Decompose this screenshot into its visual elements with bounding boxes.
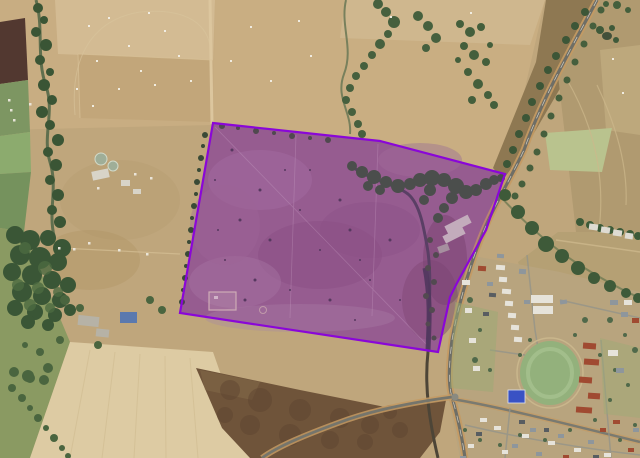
trees-creek-west [36, 106, 48, 118]
scrub-blotches [357, 434, 373, 450]
trees-sw-corner [9, 367, 19, 377]
town-houses-white [608, 350, 618, 356]
trees-riparian-light [19, 242, 31, 254]
scrub-blotches [361, 416, 379, 434]
trees-ne-scatter [603, 1, 609, 7]
trees-highway-east [581, 41, 588, 48]
trees-farm-west [60, 295, 70, 305]
town-houses-gray [530, 428, 536, 432]
town-houses-white [533, 306, 553, 314]
trees-parcel-west-fence [194, 192, 198, 196]
trees-creek-west [47, 205, 57, 215]
hay-bales [250, 26, 252, 28]
farm-vehicles [150, 177, 153, 180]
farm-vehicles [146, 253, 149, 256]
town-houses-white [574, 448, 581, 452]
trees-ne-scatter [487, 42, 493, 48]
trees-highway-east [548, 113, 555, 120]
town-houses-gray [616, 368, 624, 373]
trees-riparian-light [38, 261, 52, 275]
trees-ne-scatter [477, 23, 485, 31]
town-houses-dark [483, 312, 489, 316]
town-houses-gray [487, 282, 493, 286]
hay-bales [148, 12, 150, 14]
trees-creek-west [38, 79, 50, 91]
trees-creek-east [571, 261, 585, 275]
trees-farm-west [146, 296, 154, 304]
trees-highway-east [512, 193, 519, 200]
hay-bales [270, 80, 272, 82]
farm-vehicles [118, 249, 121, 252]
trees-parcel-west-fence [198, 155, 204, 161]
town-houses-white [502, 450, 508, 454]
trees-highway-east [590, 23, 597, 30]
farm-blue-shed [120, 312, 137, 323]
trees-creek-west [45, 175, 55, 185]
trees-creek-top [375, 39, 385, 49]
trees-creek-top [346, 84, 354, 92]
farm-south-sheds [96, 328, 110, 337]
field-ne-sandy [600, 45, 640, 135]
trees-riparian-light [45, 303, 55, 313]
trees-ne-scatter [473, 79, 483, 89]
farm-vehicles [134, 173, 137, 176]
field-green-2 [0, 132, 31, 174]
town-houses-red [579, 377, 592, 384]
trees-dam-ne [596, 26, 604, 34]
trees-town [573, 333, 577, 337]
trees-riparian-mass [64, 304, 76, 316]
trees-sw-corner [22, 370, 34, 382]
trees-creek-east [499, 189, 511, 201]
town-houses-gray [633, 428, 639, 432]
farm-vehicles [88, 242, 91, 245]
trees-highway-west [544, 66, 552, 74]
trees-riparian-light [53, 287, 63, 297]
trees-parcel-west-fence [190, 216, 194, 220]
trees-riparian-mass [21, 315, 35, 329]
town-houses-red [576, 406, 592, 413]
town-houses-white [499, 277, 507, 283]
trees-creek-east [621, 288, 631, 298]
town-houses-gray [621, 312, 628, 317]
trees-row-ne [576, 218, 584, 226]
town-houses-white [494, 426, 501, 430]
hay-bales [108, 17, 110, 19]
town-houses-white [604, 453, 611, 457]
trees-creek-east [555, 249, 569, 263]
town-houses-gray [588, 440, 594, 444]
hay-bales [96, 60, 98, 62]
town-houses-dark [489, 293, 496, 297]
town-houses-white [505, 301, 513, 307]
town-houses-white [465, 308, 472, 313]
trees-town [467, 297, 473, 303]
trees-riparian-light [12, 279, 24, 291]
town-houses-white [548, 441, 555, 445]
ne-white-sheds [625, 232, 634, 239]
town-houses-white [473, 366, 480, 371]
scrub-blotches [392, 422, 408, 438]
trees-town [632, 347, 638, 353]
trees-town [472, 357, 478, 363]
trees-town [518, 433, 522, 437]
trees-farm-west [76, 304, 84, 312]
hay-bales [190, 80, 192, 82]
trees-farm-west [158, 306, 166, 314]
field-dark-plowed [0, 18, 28, 84]
trees-ne-scatter [460, 42, 468, 50]
town-houses-red [632, 318, 639, 323]
town-houses-red [478, 266, 486, 272]
trees-town [463, 428, 467, 432]
trees-sw-corner [27, 405, 33, 411]
field-mottle-1 [60, 160, 180, 240]
trees-highway-east [541, 131, 548, 138]
town-houses-white [502, 289, 511, 295]
trees-creek-top [423, 21, 433, 31]
town-houses-gray [558, 434, 564, 438]
field-topleft-inner [78, 54, 213, 122]
trees-farm-west [36, 348, 44, 356]
farm-lane-north [210, 0, 212, 124]
hay-bales [118, 88, 120, 90]
hay-bales [230, 60, 232, 62]
town-houses-gray [536, 452, 542, 456]
hay-bales [76, 88, 78, 90]
trees-highway-east [519, 181, 526, 188]
trees-highway-east [572, 59, 579, 66]
scrub-blotches [220, 380, 240, 400]
trees-sw-corner [50, 434, 58, 442]
ne-white-sheds [601, 226, 611, 233]
trees-creek-east [538, 236, 554, 252]
trees-creek-top [413, 11, 423, 21]
trees-town [528, 338, 532, 342]
trees-riparian-mass [42, 319, 54, 331]
field-topleft-light [55, 0, 215, 60]
trees-town [607, 317, 613, 323]
hay-bales [390, 16, 392, 18]
trees-highway-west [503, 160, 511, 168]
trees-creek-west [43, 147, 53, 157]
trees-sw-corner [34, 414, 42, 422]
trees-creek-top [354, 120, 362, 128]
trees-town [478, 438, 482, 442]
field-green-1 [0, 80, 30, 136]
scrub-blotches [240, 415, 260, 435]
trees-ne-scatter [613, 1, 621, 9]
trees-town [498, 443, 502, 447]
trees-creek-west [45, 120, 55, 130]
tennis-court [508, 390, 525, 403]
trees-creek-west [40, 16, 48, 24]
town-houses-white [624, 300, 632, 305]
trees-ne-scatter [469, 50, 479, 60]
trees-farm-west [22, 342, 28, 348]
trees-parcel-west-fence [194, 179, 200, 185]
town-houses-red [588, 393, 600, 400]
trees-creek-top [352, 72, 360, 80]
town-houses-dark [544, 428, 549, 432]
farm-vehicles [10, 109, 13, 112]
trees-ne-scatter [464, 68, 472, 76]
trees-parcel-west-fence [197, 168, 201, 172]
trees-creek-west [35, 55, 45, 65]
trees-creek-top [422, 44, 430, 52]
farm-vehicles [13, 119, 16, 122]
ne-white-sheds [589, 223, 599, 230]
scrub-blotches [248, 388, 272, 412]
trees-ne-scatter [482, 58, 490, 66]
farm-west-sheds [133, 189, 141, 194]
trees-ne-scatter [455, 57, 461, 63]
trees-riparian-light [24, 299, 36, 311]
trees-town [543, 438, 547, 442]
town-houses-white [496, 265, 505, 271]
trees-creek-west [47, 95, 57, 105]
trees-farm-west [94, 341, 102, 349]
trees-creek-west [50, 159, 62, 171]
town-houses-gray [519, 269, 526, 274]
trees-highway-west [522, 114, 530, 122]
field-pale-green [545, 128, 612, 172]
town-houses-white [531, 295, 553, 303]
trees-sw-corner [59, 445, 65, 451]
map-viewport[interactable] [0, 0, 640, 458]
trees-highway-west [509, 146, 517, 154]
trees-creek-west [52, 134, 64, 146]
trees-riparian-mass [3, 263, 21, 281]
trees-sw-corner [43, 363, 53, 373]
town-houses-white [508, 313, 516, 319]
trees-dam-ne [609, 25, 615, 31]
trees-sw-corner [8, 384, 16, 392]
trees-sw-corner [39, 375, 49, 385]
town-houses-white [522, 434, 529, 438]
aerial-imagery [0, 0, 640, 458]
trees-town [633, 423, 637, 427]
trees-highway-east [598, 7, 605, 14]
trees-ne-scatter [456, 20, 464, 28]
hay-bales [128, 45, 130, 47]
town-houses-white [469, 338, 476, 343]
town-houses-white [468, 444, 474, 448]
town-houses-dark [476, 432, 482, 436]
town-houses-gray [610, 300, 618, 305]
town-houses-gray [512, 444, 518, 448]
hay-bales [622, 92, 624, 94]
town-houses-white [514, 337, 522, 343]
hay-bales [310, 55, 312, 57]
trees-creek-east [604, 280, 616, 292]
hay-bales [154, 84, 156, 86]
trees-parcel-west-fence [187, 240, 191, 244]
trees-creek-east [511, 205, 525, 219]
trees-ne-scatter [484, 91, 492, 99]
trees-town [488, 368, 492, 372]
trees-town [518, 353, 522, 357]
farm-vehicles [29, 103, 32, 106]
hay-bales [470, 12, 472, 14]
town-houses-white [480, 418, 487, 422]
trees-creek-top [342, 96, 350, 104]
scrub-blotches [217, 407, 233, 423]
trees-town [626, 383, 630, 387]
dam-ne [602, 32, 612, 40]
hay-bales [140, 70, 142, 72]
trees-highway-west [515, 130, 523, 138]
town-houses-red [613, 420, 620, 424]
hay-bales [298, 20, 300, 22]
trees-town [478, 328, 482, 332]
trees-parcel-west-fence [202, 132, 208, 138]
trees-creek-top [384, 30, 392, 38]
trees-town [618, 438, 622, 442]
trees-highway-east [534, 149, 541, 156]
scrub-blotches [321, 431, 339, 449]
trees-creek-west [31, 27, 41, 37]
farm-tanks [108, 161, 118, 171]
town-houses-dark [519, 420, 525, 424]
trees-highway-east [527, 165, 534, 172]
trees-riparian-light [32, 282, 44, 294]
town-houses-white [462, 280, 470, 285]
trees-highway-west [562, 36, 570, 44]
hay-bales [88, 25, 90, 27]
farm-vehicles [73, 248, 76, 251]
scrub-blotches [289, 399, 311, 421]
trees-town [593, 418, 597, 422]
trees-highway-west [571, 22, 579, 30]
farm-tanks [95, 153, 107, 165]
trees-ne-scatter [490, 101, 498, 109]
trees-creek-top [381, 7, 391, 17]
trees-dam-ne [613, 37, 619, 43]
hay-bales [164, 30, 166, 32]
trees-highway-east [556, 95, 563, 102]
trees-creek-west [33, 3, 43, 13]
trees-sw-corner [18, 394, 26, 402]
town-houses-gray [497, 254, 504, 258]
trees-creek-east [525, 221, 539, 235]
ne-white-sheds [613, 229, 623, 236]
trees-creek-top [360, 62, 368, 70]
trees-ne-scatter [468, 96, 476, 104]
hay-bales [92, 105, 94, 107]
trees-highway-west [552, 52, 560, 60]
trees-town [582, 317, 588, 323]
town-houses-white [511, 325, 519, 331]
trees-ne-scatter [465, 27, 475, 37]
field-topcenter-light [340, 0, 545, 45]
town-houses-red [584, 358, 599, 365]
junction-island [452, 394, 459, 401]
town-houses-red [600, 428, 606, 432]
trees-highway-west [581, 8, 589, 16]
trees-creek-west [46, 68, 54, 76]
trees-creek-west [40, 39, 52, 51]
town-houses-gray [524, 300, 530, 304]
trees-sw-corner [43, 425, 49, 431]
trees-creek-east [588, 272, 600, 284]
trees-riparian-mass [7, 300, 23, 316]
trees-creek-top [348, 108, 356, 116]
trees-highway-west [536, 82, 544, 90]
trees-parcel-west-fence [191, 203, 197, 209]
trees-creek-top [368, 51, 376, 59]
town-houses-red [628, 448, 634, 452]
trees-creek-west [52, 189, 64, 201]
trees-town [598, 353, 602, 357]
trees-riparian-mass [40, 230, 56, 246]
trees-farm-west [56, 336, 64, 344]
town-houses-red [583, 343, 596, 350]
hay-bales [612, 58, 614, 60]
trees-town [608, 398, 612, 402]
trees-town [568, 428, 572, 432]
town-lawn-west [450, 302, 498, 392]
trees-town [623, 333, 627, 337]
farm-vehicles [97, 187, 100, 190]
trees-ne-scatter [625, 7, 631, 13]
farm-vehicles [8, 99, 11, 102]
farm-west-sheds [121, 180, 130, 186]
trees-creek-west [54, 216, 66, 228]
trees-creek-top [358, 130, 366, 138]
trees-creek-top [388, 16, 400, 28]
trees-parcel-west-fence [201, 144, 205, 148]
farm-vehicles [58, 247, 61, 250]
trees-creek-top [431, 33, 441, 43]
trees-highway-east [564, 77, 571, 84]
trees-highway-west [528, 98, 536, 106]
hay-bales [178, 55, 180, 57]
